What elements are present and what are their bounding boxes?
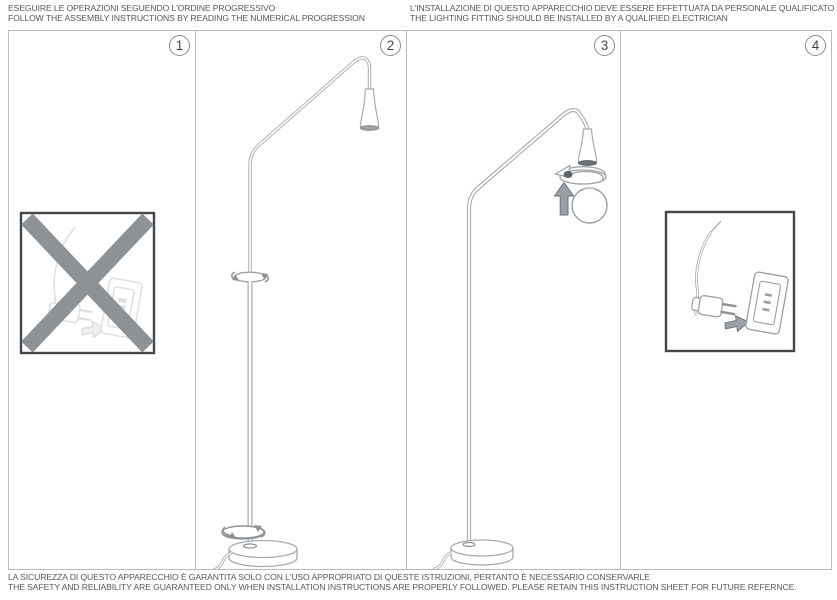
footer-line2: THE SAFETY AND RELIABILITY ARE GUARANTEE… [8,582,797,592]
step-number-badge: 1 [169,35,190,56]
power-cable [421,553,452,570]
panel-1: 1 [9,31,196,569]
socket-collar [555,166,606,185]
up-arrow-icon [555,183,574,216]
panel-4: 4 [621,31,831,569]
header-left-line1: ESEGUIRE LE OPERAZIONI SEGUENDO L'ORDINE… [8,3,365,13]
panel-3: 3 [407,31,621,569]
floor-lamp-pole-assembly-illustration [196,31,407,569]
panel-2: 2 [196,31,407,569]
step-number-badge: 4 [805,35,826,56]
header-right: L'INSTALLAZIONE DI QUESTO APPARECCHIO DE… [410,3,834,23]
instruction-sheet: ESEGUIRE LE OPERAZIONI SEGUENDO L'ORDINE… [0,0,837,600]
panel-strip: 1 [8,30,832,570]
header-left: ESEGUIRE LE OPERAZIONI SEGUENDO L'ORDINE… [8,3,365,23]
bulb-insertion-illustration [407,31,621,569]
header-right-line1: L'INSTALLAZIONE DI QUESTO APPARECCHIO DE… [410,3,834,13]
plug-into-socket-illustration [621,31,831,569]
crossed-out-plug-icon [9,31,196,569]
power-cable [202,553,232,569]
lamp-head [579,129,597,165]
mid-locking-collar [232,272,269,282]
lamp-arm [250,58,370,274]
header-right-line2: THE LIGHTING FITTING SHOULD BE INSTALLED… [410,13,834,23]
lamp-base [451,540,513,565]
base-screw-ring [222,525,265,539]
header-left-line2: FOLLOW THE ASSEMBLY INSTRUCTIONS BY READ… [8,13,365,23]
lamp-head [361,89,379,130]
footer-line1: LA SICUREZZA DI QUESTO APPARECCHIO È GAR… [8,572,797,582]
footer: LA SICUREZZA DI QUESTO APPARECCHIO È GAR… [8,572,797,592]
step-number-badge: 2 [380,35,401,56]
step-number-badge: 3 [594,35,615,56]
lamp-base [229,541,297,567]
